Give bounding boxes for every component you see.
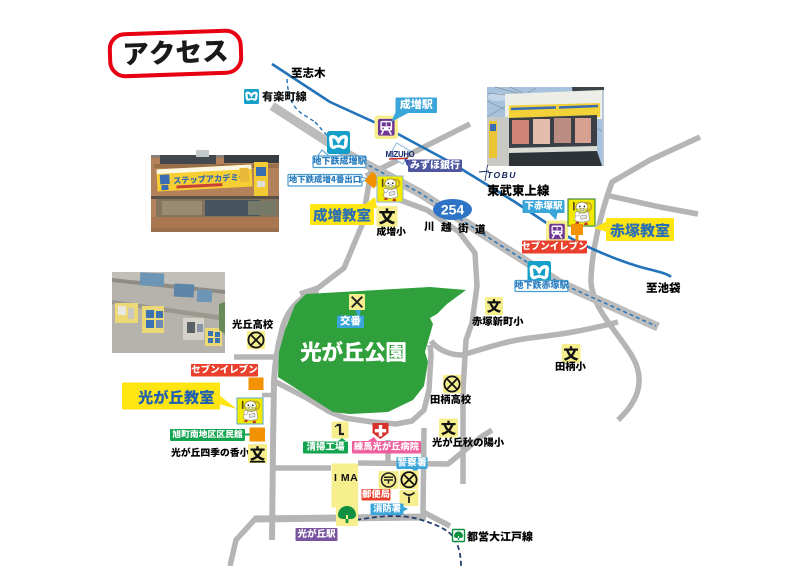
- svg-text:MIZUHO: MIZUHO: [386, 150, 415, 159]
- svg-text:254: 254: [441, 202, 465, 218]
- svg-text:I MA: I MA: [334, 472, 358, 484]
- svg-text:TOBU: TOBU: [487, 170, 517, 180]
